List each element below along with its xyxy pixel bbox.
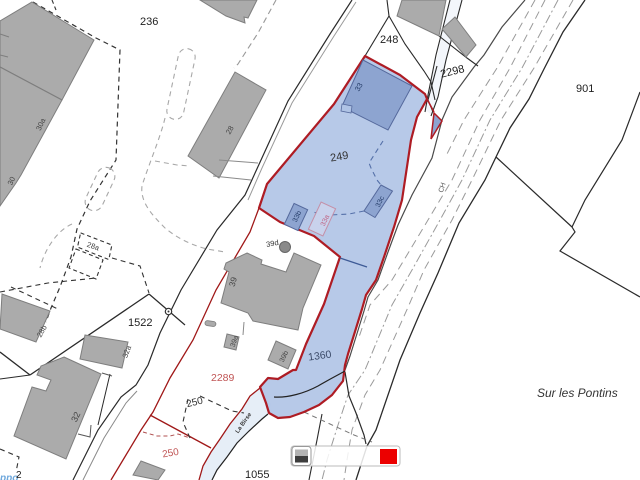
svg-text:1055: 1055 [245, 469, 269, 480]
svg-text:Sur les Pontins: Sur les Pontins [537, 386, 618, 400]
svg-text:236: 236 [140, 16, 158, 28]
svg-text:2: 2 [16, 470, 22, 480]
svg-text:2289: 2289 [211, 372, 235, 384]
svg-text:248: 248 [380, 34, 398, 46]
svg-text:901: 901 [576, 83, 594, 95]
svg-text:1522: 1522 [128, 317, 152, 329]
